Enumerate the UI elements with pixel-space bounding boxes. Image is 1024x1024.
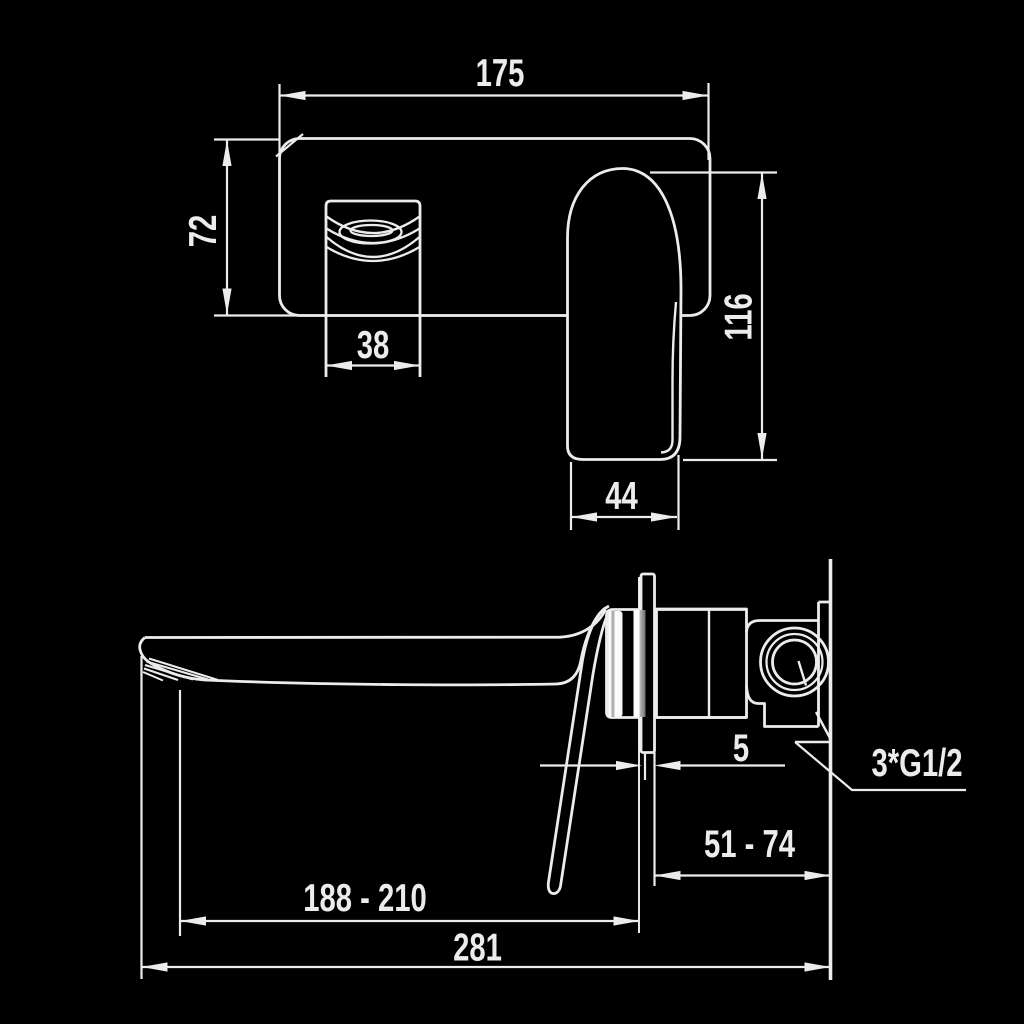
svg-text:44: 44 — [605, 475, 638, 518]
svg-text:3*G1/2: 3*G1/2 — [871, 742, 962, 785]
svg-text:72: 72 — [182, 215, 225, 248]
svg-text:38: 38 — [357, 324, 390, 367]
svg-text:281: 281 — [453, 927, 502, 970]
svg-text:116: 116 — [718, 293, 761, 340]
svg-text:5: 5 — [733, 727, 749, 770]
svg-text:188 - 210: 188 - 210 — [303, 877, 427, 920]
svg-text:51 - 74: 51 - 74 — [704, 823, 795, 866]
svg-text:175: 175 — [476, 52, 525, 95]
